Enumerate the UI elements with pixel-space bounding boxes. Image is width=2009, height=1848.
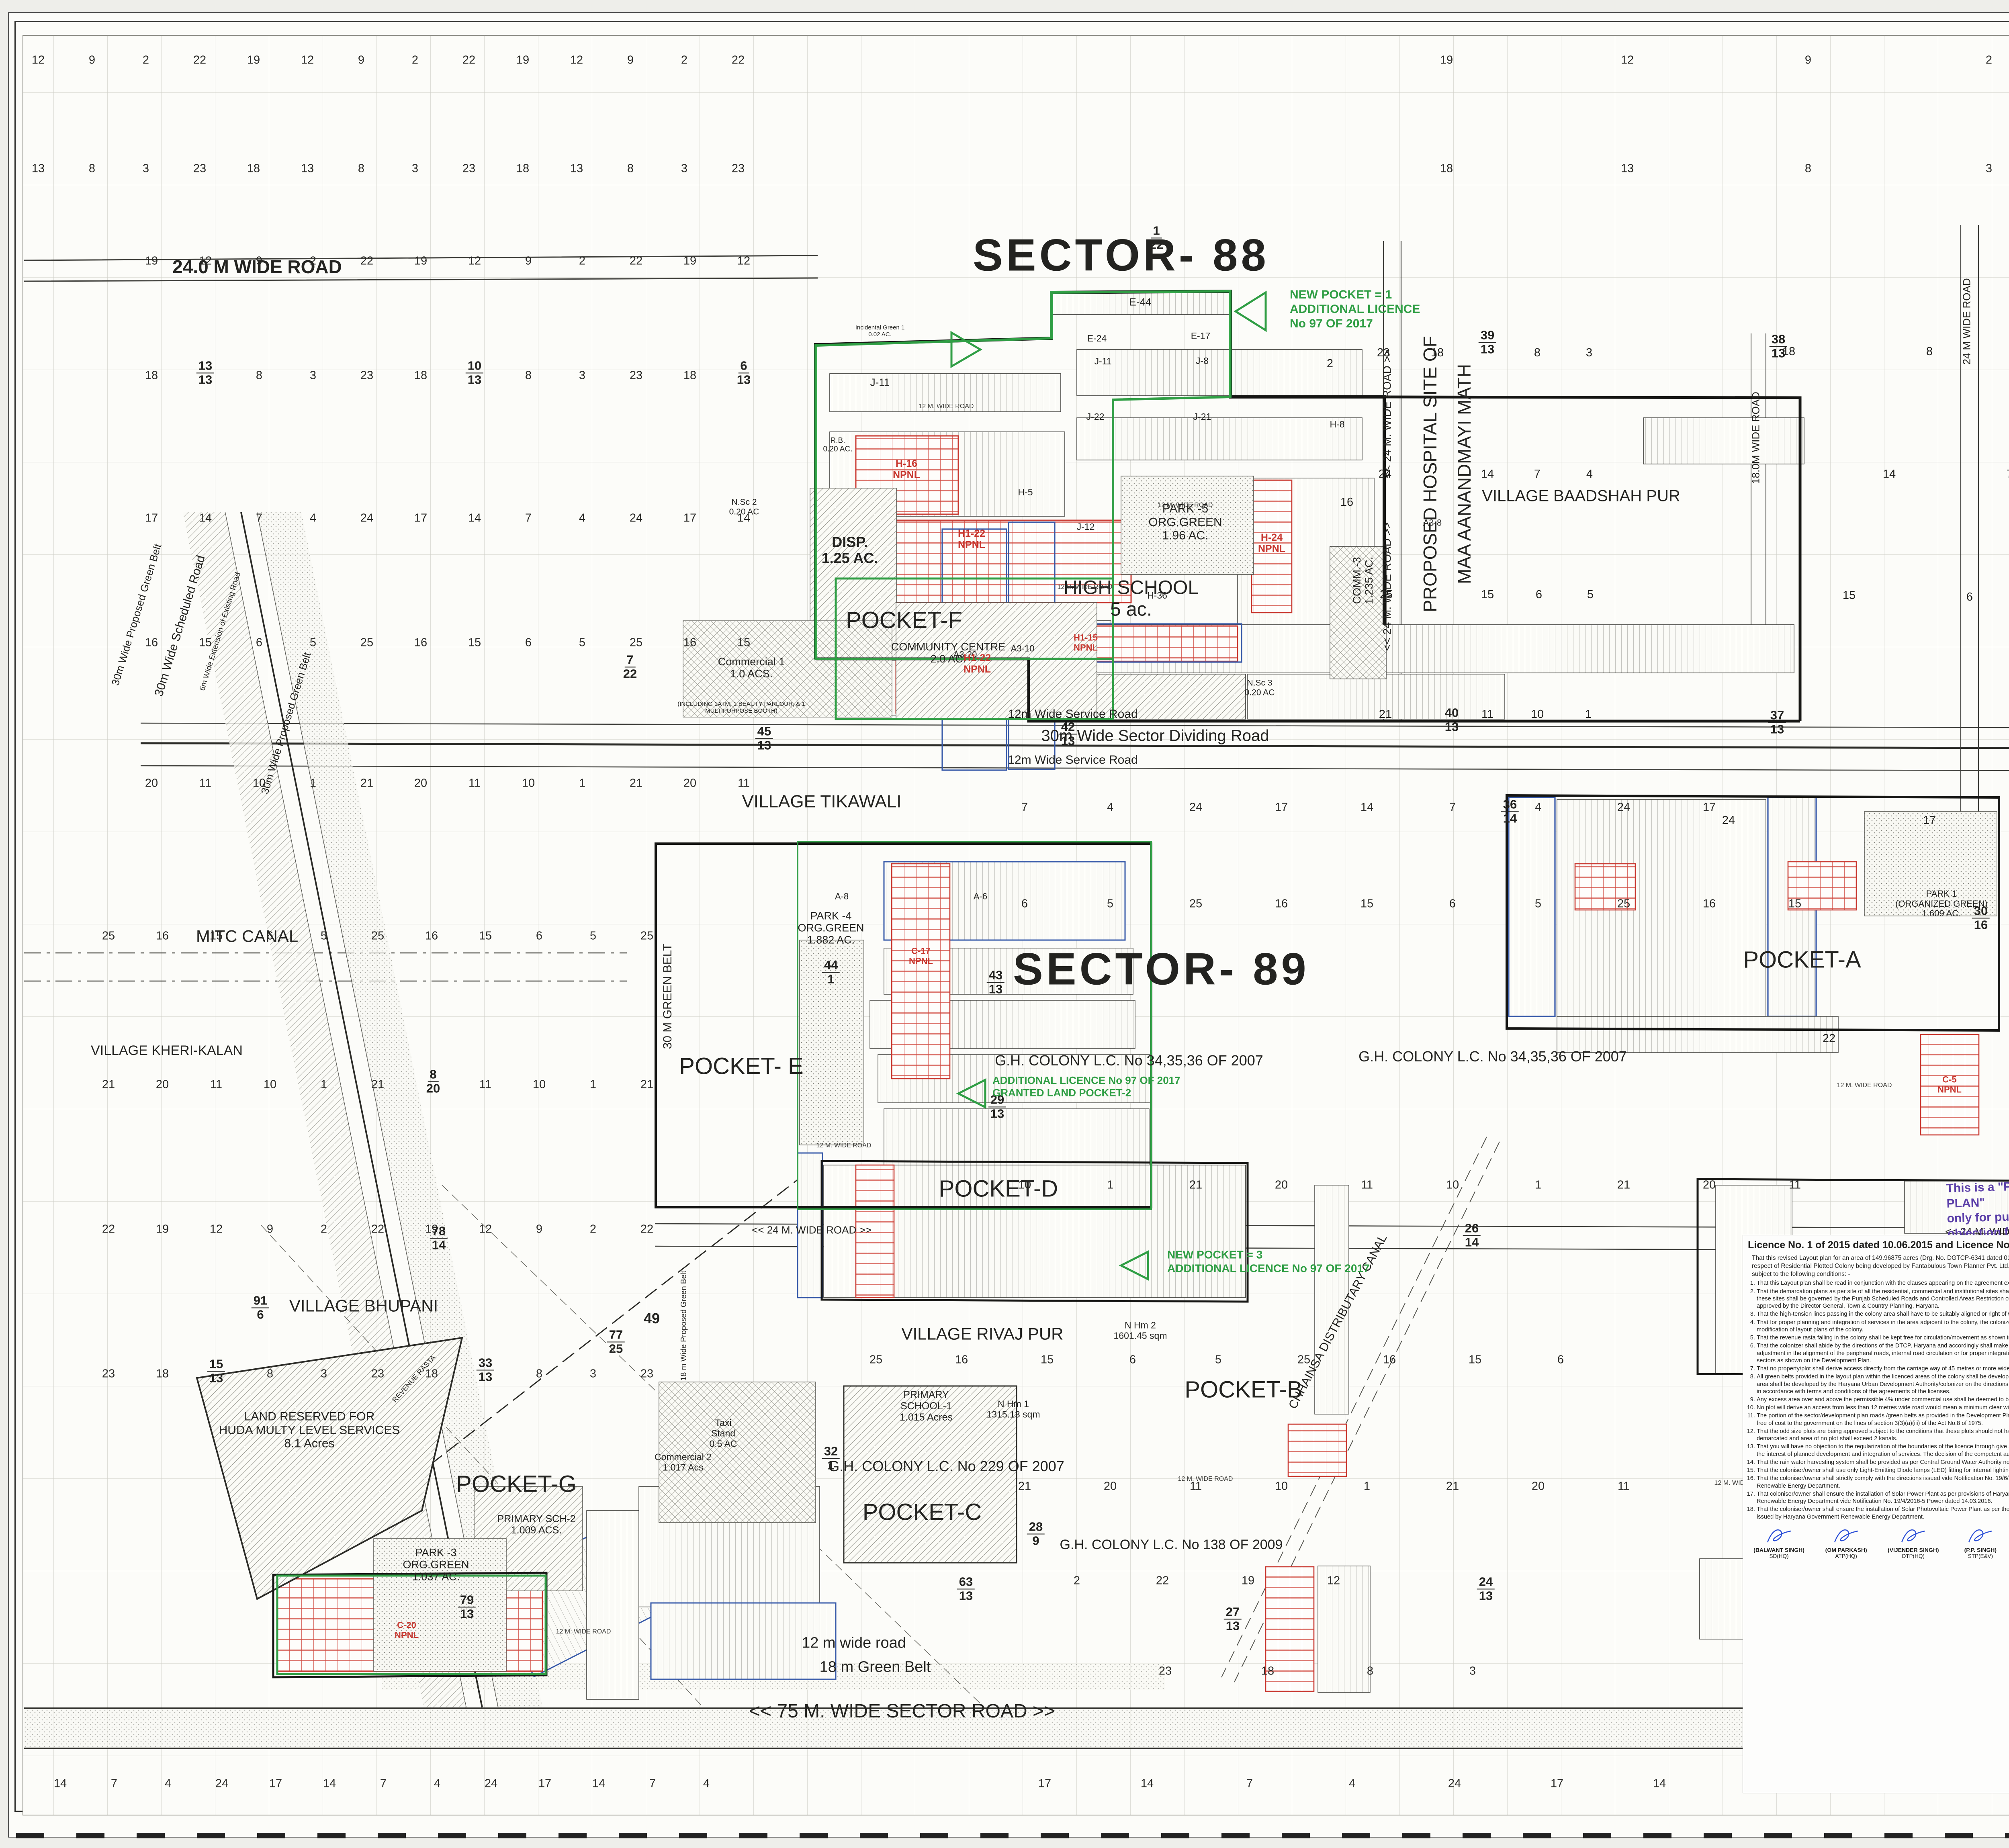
khasra-number: 13 [570,162,583,176]
map-label: J-21 [1193,412,1211,422]
khasra-number: 19 [425,1223,438,1236]
signatory: (OM PARKASH)ATP(HQ) [1813,1526,1880,1559]
map-label: 25 [1380,588,1393,601]
khasra-number: 18 [1440,162,1453,176]
khasra-number: 4 [165,1777,171,1791]
map-label: (INCLUDING 1ATM, 1 BEAUTY PARLOUR, & 1 M… [677,701,805,715]
khasra-number: 7 [1449,801,1456,814]
khasra-number: 3 [1986,162,1992,176]
map-label: Taxi Stand 0.5 AC [709,1418,737,1449]
khasra-number: 2 [1986,54,1992,67]
map-label: 14 [1481,468,1494,480]
map-label: COMM.-3 1.235 AC. [1351,557,1375,605]
map-label: 4 [1586,468,1593,480]
stamp-signature [1999,1113,2009,1179]
khasra-number: 8 [536,1368,542,1381]
map-label: H-5 [1018,487,1033,498]
khasra-fraction: 3713 [1768,709,1786,736]
map-label: PRIMARY SCH-2 1.009 ACS. [497,1513,576,1536]
map-label: Incidental Green 1 0.02 AC. [855,325,905,338]
khasra-number: 10 [1275,1480,1288,1493]
signatory: (BALWANT SINGH)SD(HQ) [1745,1526,1813,1559]
khasra-fraction: 2614 [1463,1222,1481,1249]
khasra-number: 4 [579,512,585,525]
condition-item: That this Layout plan shall be read in c… [1757,1280,2009,1287]
khasra-number: 23 [1159,1665,1172,1678]
khasra-number: 21 [102,1078,115,1092]
map-label: << 24 M. WIDE ROAD >> [1381,522,1393,651]
khasra-number: 19 [145,255,158,268]
map-label: << 24 M. WIDE ROAD >> [1381,350,1393,478]
map-label: 18 m Wide Proposed Green Belt [679,1271,688,1381]
map-label: LAND RESERVED FOR HUDA MULTY LEVEL SERVI… [219,1410,400,1451]
map-label: 14 [1883,468,1896,480]
map-label: N Hm 2 1601.45 sqm [1114,1320,1167,1341]
green-licence-annotation: NEW POCKET = 1 ADDITIONAL LICENCE No 97 … [1290,288,1420,331]
map-label: H1-15 NPNL [1074,633,1098,652]
khasra-fraction: 2713 [1224,1605,1242,1632]
khasra-number: 8 [1805,162,1811,176]
khasra-number: 25 [371,929,384,942]
map-label: G.H. COLONY L.C. No 34,35,36 OF 2007 [995,1053,1263,1069]
signatory-role: DTP(HQ) [1880,1553,1947,1559]
khasra-number: 10 [1446,1179,1459,1192]
map-label: 12 M. WIDE ROAD [919,403,974,410]
map-label: VILLAGE RIVAJ PUR [901,1324,1063,1343]
map-label: 12m Wide Service Road [1008,753,1137,767]
khasra-number: 22 [371,1223,384,1236]
map-label: PROPOSED HOSPITAL SITE OF [1420,336,1441,612]
khasra-fraction: 7725 [607,1328,625,1355]
condition-item: That the colonizer shall abide by the di… [1757,1342,2009,1364]
condition-item: No plot will derive an access from less … [1757,1404,2009,1411]
khasra-number: 24 [215,1777,228,1791]
green-licence-annotation: ADDITIONAL LICENCE No 97 OF 2017 GRANTED… [992,1074,1180,1099]
map-label: 12 M. WIDE ROAD [1837,1082,1892,1089]
map-label: H-24 NPNL [1258,532,1285,554]
khasra-number: 12 [479,1223,492,1236]
khasra-number: 1 [310,777,316,790]
map-label: 30m Wide Proposed Green Belt [259,651,313,795]
map-label: J-11 [1094,356,1111,367]
khasra-number: 24 [1448,1777,1461,1791]
khasra-number: 14 [323,1777,336,1791]
map-label: A-8 [835,892,849,902]
map-label: SECTOR- 89 [1013,944,1309,994]
khasra-number: 2 [321,1223,327,1236]
khasra-number: 11 [479,1078,491,1092]
condition-item: That the coloniser/owner shall ensure th… [1757,1506,2009,1520]
khasra-fraction: 3016 [1972,904,1990,931]
khasra-number: 10 [253,777,266,790]
khasra-number: 24 [485,1777,497,1791]
map-label: 15 [1481,588,1494,601]
sheet-bottom-edge [16,1833,2009,1838]
khasra-number: 17 [538,1777,551,1791]
khasra-number: 21 [360,777,373,790]
khasra-number: 16 [156,929,169,942]
khasra-fraction: 4013 [1443,706,1461,733]
map-label-layer: 24.0 M WIDE ROADSECTOR- 88SECTOR- 89DISP… [0,0,2009,1848]
map-label: H-8 [1330,419,1344,430]
khasra-number: 17 [269,1777,282,1791]
khasra-fraction: 613 [737,359,751,386]
signatory-name: (VIJENDER SINGH) [1880,1547,1947,1553]
khasra-number: 15 [1041,1353,1054,1367]
khasra-number: 13 [301,162,314,176]
khasra-number: 14 [1360,801,1373,814]
khasra-number: 5 [310,636,316,650]
khasra-number: 20 [156,1078,169,1092]
khasra-number: 16 [145,636,158,650]
map-label: POCKET-F [846,608,962,634]
khasra-number: 3 [681,162,687,176]
map-label: PARK -4 ORG.GREEN 1.882 AC. [798,910,864,946]
khasra-fraction: 7913 [458,1593,476,1620]
khasra-number: 18 [156,1368,169,1381]
khasra-number: 7 [111,1777,117,1791]
khasra-number: 11 [210,1078,222,1092]
map-label: 22 [1823,1032,1835,1045]
khasra-number: 23 [102,1368,115,1381]
khasra-number: 23 [193,162,206,176]
khasra-number: 6 [256,636,262,650]
condition-item: That the revenue rasta falling in the co… [1757,1334,2009,1341]
condition-item: That the odd size plots are being approv… [1757,1428,2009,1442]
khasra-fraction: 722 [623,653,637,680]
khasra-number: 9 [256,255,262,268]
map-label: 6m Wide Extension of Existing Road [198,571,242,692]
khasra-number: 21 [371,1078,384,1092]
khasra-number: 21 [1189,1179,1202,1192]
conditions-list: That this Layout plan shall be read in c… [1757,1280,2009,1520]
khasra-number: 25 [1189,897,1202,911]
map-label: 24 [1379,468,1391,480]
khasra-number: 25 [640,929,653,942]
map-label: 3 [1586,346,1592,359]
khasra-number: 14 [1141,1777,1154,1791]
khasra-number: 11 [468,777,481,790]
khasra-fraction: 6313 [957,1575,975,1602]
khasra-number: 9 [536,1223,542,1236]
khasra-number: 9 [267,1223,273,1236]
khasra-number: 5 [579,636,585,650]
khasra-number: 22 [193,54,206,67]
map-label: 2 [1327,357,1333,370]
map-label: 7 [2007,468,2009,480]
map-label: 12 M. WIDE ROAD [1178,1476,1233,1483]
khasra-number: 18 [247,162,260,176]
khasra-number: 25 [1617,897,1630,911]
khasra-number: 9 [1805,54,1811,67]
khasra-number: 1 [579,777,585,790]
khasra-number: 3 [310,369,316,382]
khasra-number: 5 [1107,897,1113,911]
map-label: J-22 [1086,412,1105,422]
khasra-number: 14 [737,512,750,525]
condition-item: That the coloniser/owner shall strictly … [1757,1475,2009,1489]
khasra-number: 20 [683,777,696,790]
map-label: H1-22 NPNL [964,652,991,675]
signature-icon [1832,1526,1860,1545]
map-label: DISP. 1.25 AC. [822,534,878,567]
khasra-number: 9 [525,255,532,268]
notes-heading: Licence No. 1 of 2015 dated 10.06.2015 a… [1748,1239,2009,1251]
khasra-number: 17 [414,512,427,525]
map-label: H1-22 NPNL [958,528,985,550]
khasra-number: 6 [1129,1353,1136,1367]
khasra-number: 7 [1021,801,1028,814]
map-label: 18 [1431,346,1444,359]
khasra-number: 15 [199,636,212,650]
map-label: Commercial 1 1.0 ACS. [718,656,785,680]
map-label: 30m Wide Proposed Green Belt [109,542,164,687]
khasra-number: 23 [462,162,475,176]
map-label: POCKET-A [1743,947,1861,973]
khasra-number: 6 [1021,897,1028,911]
khasra-fraction: 3913 [1479,329,1496,356]
khasra-number: 20 [1532,1480,1545,1493]
condition-item: All green belts provided in the layout p… [1757,1373,2009,1395]
khasra-number: 11 [1789,1179,1801,1192]
khasra-number: 18 [145,369,158,382]
khasra-number: 18 [425,1368,438,1381]
map-label: E-44 [1129,296,1152,308]
map-label: 12 M. WIDE ROAD [1158,502,1213,509]
khasra-number: 16 [414,636,427,650]
map-label: 12 M. WIDE ROAD [816,1142,872,1149]
map-label: POCKET-D [939,1176,1058,1202]
khasra-number: 15 [210,929,223,942]
khasra-number: 15 [1788,897,1801,911]
khasra-number: 14 [199,512,212,525]
map-label: 24 [1722,814,1735,827]
khasra-number: 11 [1618,1480,1630,1493]
map-label: 11 [1481,708,1493,721]
khasra-number: 18 [414,369,427,382]
map-label: G.H. COLONY L.C. No 34,35,36 OF 2007 [1358,1049,1627,1065]
khasra-number: 16 [955,1353,968,1367]
khasra-number: 8 [627,162,634,176]
signatory-role: STP(E&V) [1947,1553,2009,1559]
khasra-number: 20 [145,777,158,790]
khasra-number: 21 [1446,1480,1459,1493]
khasra-number: 21 [630,777,642,790]
map-label: 23 [1377,346,1390,359]
khasra-number: 16 [1383,1353,1396,1367]
khasra-number: 21 [640,1078,653,1092]
khasra-number: 20 [1703,1179,1716,1192]
condition-item: That the demarcation plans as per site o… [1757,1288,2009,1310]
khasra-number: 11 [738,777,750,790]
khasra-number: 25 [1297,1353,1310,1367]
map-label: 16 [1340,496,1353,509]
map-label: J-8 [1196,356,1209,366]
khasra-number: 12 [210,1223,223,1236]
khasra-number: 23 [630,369,642,382]
map-label: 30m Wide Scheduled Road [152,554,208,698]
khasra-number: 23 [640,1368,653,1381]
khasra-number: 15 [1360,897,1373,911]
map-label: N Hm 1 1315.13 sqm [987,1399,1040,1420]
khasra-number: 20 [1275,1179,1288,1192]
khasra-number: 19 [1440,54,1453,67]
khasra-number: 5 [590,929,596,942]
map-label: 7 [1534,468,1541,480]
khasra-number: 11 [199,777,211,790]
map-label: VILLAGE KHERI-KALAN [91,1043,243,1058]
khasra-fraction: 321 [822,1445,840,1472]
map-label: C-5 NPNL [1937,1075,1962,1094]
khasra-number: 24 [1617,801,1630,814]
khasra-number: 7 [380,1777,387,1791]
khasra-number: 15 [737,636,750,650]
map-label: 5 [1587,588,1594,601]
map-label: A-6 [974,892,987,902]
khasra-fraction: 4513 [755,725,773,752]
khasra-number: 14 [468,512,481,525]
khasra-number: 8 [358,162,364,176]
khasra-number: 17 [1551,1777,1563,1791]
khasra-number: 19 [683,255,696,268]
licence-conditions-notes: Licence No. 1 of 2015 dated 10.06.2015 a… [1743,1235,2009,1793]
map-label: POCKET- E [679,1054,803,1080]
khasra-number: 16 [1703,897,1716,911]
khasra-number: 23 [371,1368,384,1381]
map-label: 18.0M WIDE ROAD [1750,392,1761,484]
khasra-number: 5 [1215,1353,1221,1367]
khasra-number: 4 [434,1777,440,1791]
khasra-fraction: 441 [822,959,840,985]
map-label: SECTOR- 88 [973,230,1269,280]
khasra-number: 6 [525,636,532,650]
khasra-number: 7 [525,512,532,525]
khasra-number: 2 [579,255,585,268]
khasra-number: 13 [32,162,45,176]
khasra-number: 9 [627,54,634,67]
khasra-number: 16 [425,929,438,942]
khasra-number: 14 [592,1777,605,1791]
khasra-number: 21 [1018,1480,1031,1493]
khasra-number: 10 [264,1078,276,1092]
map-label: 21 [1379,708,1392,721]
condition-item: That the rain water harvesting system sh… [1757,1459,2009,1466]
khasra-fraction: 122 [1150,224,1163,251]
khasra-number: 15 [479,929,492,942]
khasra-number: 19 [516,54,529,67]
khasra-number: 1 [590,1078,596,1092]
map-label: C-20 NPNL [395,1620,419,1640]
khasra-fraction: 1313 [196,359,214,386]
khasra-number: 4 [1107,801,1113,814]
khasra-number: 23 [360,369,373,382]
khasra-number: 12 [1621,54,1634,67]
khasra-number: 22 [360,255,373,268]
khasra-number: 2 [143,54,149,67]
khasra-number: 9 [358,54,364,67]
khasra-fraction: 2413 [1477,1575,1495,1602]
khasra-number: 8 [256,369,262,382]
signature-icon [1765,1526,1793,1545]
map-label: POCKET-G [456,1472,577,1498]
map-label: A3-8 [1423,518,1442,528]
khasra-number: 19 [156,1223,169,1236]
signatory-role: SD(HQ) [1745,1553,1813,1559]
khasra-number: 24 [1189,801,1202,814]
signatory-name: (OM PARKASH) [1813,1547,1880,1553]
khasra-number: 3 [579,369,585,382]
khasra-number: 1 [321,1078,327,1092]
khasra-fraction: 1513 [207,1357,225,1384]
khasra-number: 3 [590,1368,596,1381]
map-label: POCKET-B [1185,1377,1302,1403]
khasra-number: 5 [321,929,327,942]
khasra-fraction: 3313 [477,1356,494,1383]
khasra-number: 17 [1038,1777,1051,1791]
khasra-number: 16 [683,636,696,650]
map-label: 12 M. WIDE ROAD [556,1628,611,1635]
khasra-number: 18 [516,162,529,176]
khasra-number: 20 [414,777,427,790]
khasra-number: 14 [54,1777,67,1791]
khasra-number: 4 [310,512,316,525]
condition-item: That no property/plot shall derive acces… [1757,1365,2009,1372]
map-label: 30 M GREEN BELT [661,944,675,1049]
map-label: POCKET-C [863,1500,982,1526]
khasra-number: 22 [732,54,745,67]
khasra-number: 22 [1156,1574,1169,1588]
map-label: G.H. COLONY L.C. No 229 OF 2007 [828,1458,1064,1474]
khasra-number: 8 [525,369,532,382]
khasra-number: 10 [522,777,535,790]
khasra-number: 11 [1361,1179,1373,1192]
khasra-number: 22 [640,1223,653,1236]
khasra-number: 1 [1107,1179,1113,1192]
signatory: (VIJENDER SINGH)DTP(HQ) [1880,1526,1947,1559]
khasra-number: 17 [1703,801,1716,814]
khasra-number: 7 [649,1777,656,1791]
khasra-number: 3 [321,1368,327,1381]
condition-item: The portion of the sector/development pl… [1757,1412,2009,1427]
khasra-number: 14 [1653,1777,1666,1791]
map-label: 8 [1926,345,1933,358]
khasra-number: 19 [1242,1574,1254,1588]
khasra-number: 25 [869,1353,882,1367]
khasra-fraction: 4213 [1059,720,1077,747]
map-label: 1 [1585,708,1592,721]
khasra-number: 8 [89,162,95,176]
khasra-number: 17 [145,512,158,525]
khasra-number: 16 [1275,897,1288,911]
khasra-number: 5 [1535,897,1541,911]
map-label: 12m Wide Service Road [1008,707,1137,721]
khasra-number: 21 [1617,1179,1630,1192]
khasra-number: 18 [1261,1665,1274,1678]
khasra-number: 12 [737,255,750,268]
green-licence-annotation: NEW POCKET = 3 ADDITIONAL LICENCE No 97 … [1167,1248,1370,1275]
khasra-fraction: 4313 [987,969,1004,996]
map-label: << 75 M. WIDE SECTOR ROAD >> [749,1701,1055,1722]
map-label: 10 [1531,708,1544,721]
map-label: 49 [644,1310,660,1327]
map-label: 6 [1536,588,1542,601]
signatory: (P.P. SINGH)STP(E&V) [1947,1526,2009,1559]
map-label: R.B. 0.20 AC. [823,437,853,454]
signature-icon [1899,1526,1927,1545]
signature-icon [1966,1526,1995,1545]
khasra-number: 15 [468,636,481,650]
khasra-number: 19 [414,255,427,268]
